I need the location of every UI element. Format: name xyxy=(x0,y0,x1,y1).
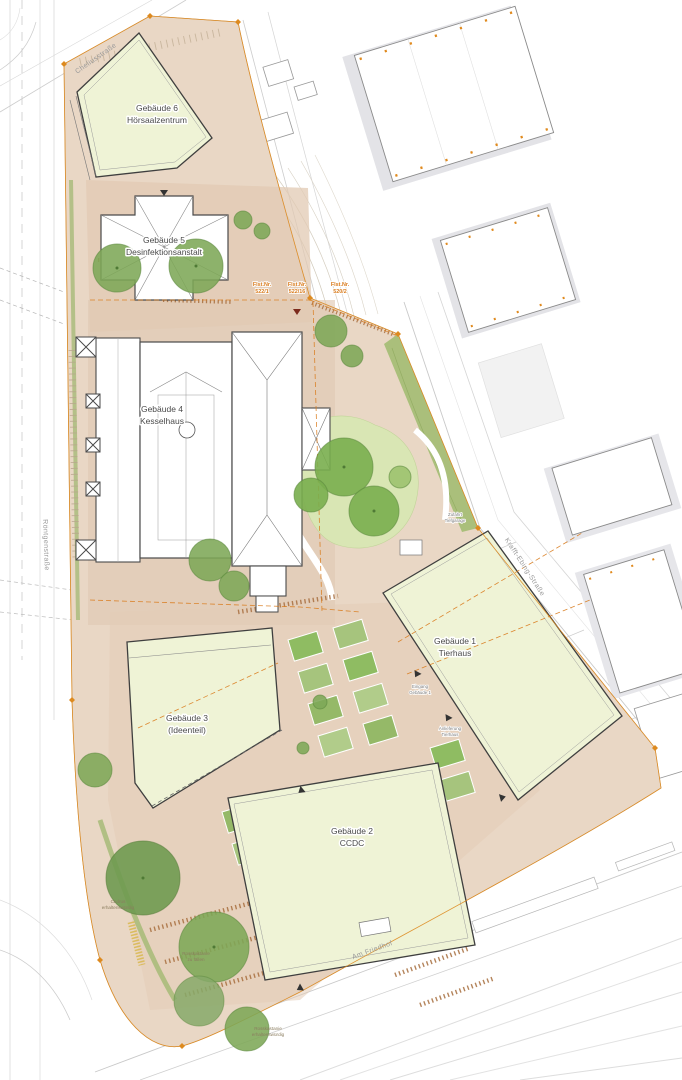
label-gebaeude-6-line1: Gebäude 6 xyxy=(136,103,178,113)
label-tree-rosskastanie-faellen-line1: Rosskastanie xyxy=(182,951,210,956)
label-gebaeude-3-line1: Gebäude 3 xyxy=(166,713,208,723)
label-tree-rosskastanie-faellen-line2: zu fällen xyxy=(187,957,205,962)
label-gebaeude-1-line1: Gebäude 1 xyxy=(434,636,476,646)
label-parcel-522-1-line1: Flst.Nr. xyxy=(253,282,272,288)
label-parcel-522-16-line2: 522/16 xyxy=(289,289,306,295)
label-parcel-522-16-line1: Flst.Nr. xyxy=(288,282,307,288)
label-parcel-520-2-line2: 520/2 xyxy=(333,289,347,295)
label-gebaeude-2-line2: CCDC xyxy=(340,838,365,848)
label-tree-cedrus-line1: Cedrus xyxy=(111,899,127,904)
label-gebaeude-5-line2: Desinfektionsanstalt xyxy=(126,247,203,257)
label-anlieferung-tierhaus-line1: Anlieferung xyxy=(439,726,462,731)
label-gebaeude-5-line1: Gebäude 5 xyxy=(143,235,185,245)
label-gebaeude-3-line2: (Ideenteil) xyxy=(168,725,206,735)
label-anlieferung-tierhaus-line2: Tierhaus xyxy=(442,732,460,737)
label-tree-rosskastanie-erhalten-line1: Rosskastanie xyxy=(254,1026,282,1031)
label-parcel-522-1-line2: 522/1 xyxy=(255,289,269,295)
building-gebaeude-2 xyxy=(228,763,475,980)
label-gebaeude-4-line2: Kesselhaus xyxy=(140,416,184,426)
label-tree-cedrus-line2: erhaltenswürdig xyxy=(102,905,135,910)
label-zufahrt-tiefgarage-line1: Zufahrt xyxy=(448,512,463,517)
label-gebaeude-2-line1: Gebäude 2 xyxy=(331,826,373,836)
label-eingang-gebaeude-1-line1: Eingang xyxy=(412,684,429,689)
label-gebaeude-6-line2: Hörsaalzentrum xyxy=(127,115,187,125)
label-zufahrt-tiefgarage-line2: Tiefgarage xyxy=(445,518,466,523)
label-eingang-gebaeude-1-line2: Gebäude 1 xyxy=(409,690,431,695)
site-plan-page: Gebäude 6 Hörsaalzentrum Gebäude 5 Desin… xyxy=(0,0,682,1080)
label-street-roentgenstrasse: Röntgenstraße xyxy=(41,519,50,571)
label-gebaeude-1-line2: Tierhaus xyxy=(439,648,472,658)
label-tree-rosskastanie-erhalten-line2: erhaltenswürdig xyxy=(252,1032,285,1037)
label-parcel-520-2-line1: Flst.Nr. xyxy=(331,282,350,288)
label-gebaeude-4-line1: Gebäude 4 xyxy=(141,404,183,414)
site-plan-canvas: Gebäude 6 Hörsaalzentrum Gebäude 5 Desin… xyxy=(0,0,682,1080)
